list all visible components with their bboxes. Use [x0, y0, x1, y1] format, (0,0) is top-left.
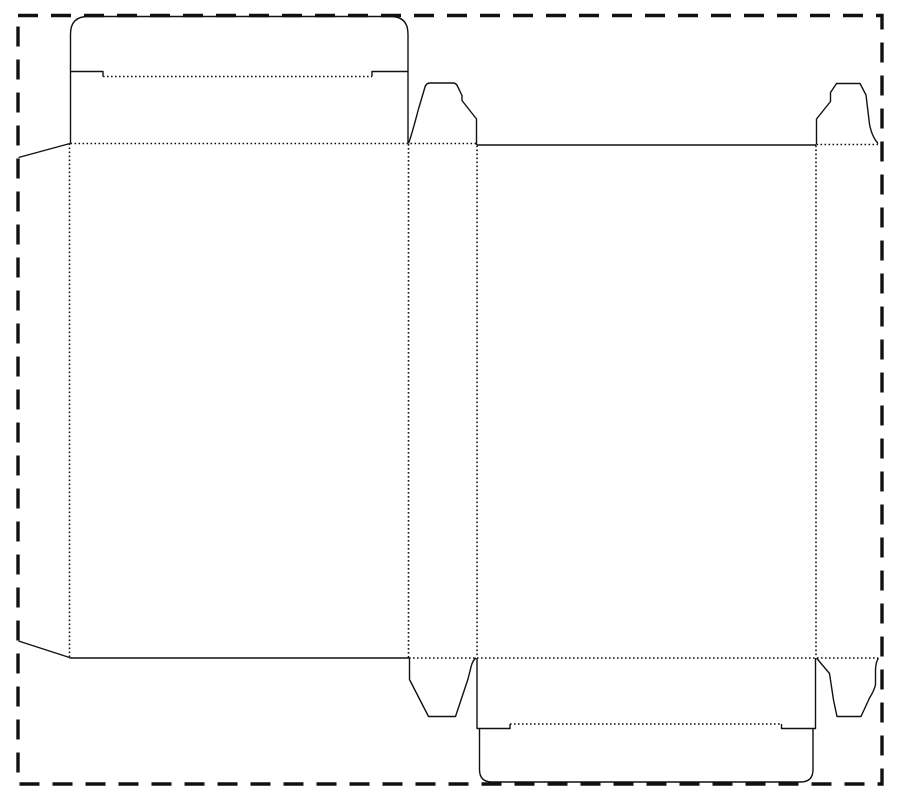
dieline-border-group [18, 16, 882, 785]
dieline-canvas [0, 0, 900, 800]
top-tuck-shoulder-left [71, 72, 104, 77]
page [0, 0, 900, 800]
bottom-tuck-lid-outline [480, 729, 814, 783]
bottom-dust-flap-right [817, 658, 879, 717]
glue-flap-bottom-edge [19, 641, 70, 658]
dieline-fold-lines-group [70, 77, 879, 725]
top-dust-flap-left [409, 83, 477, 145]
sheet-border [18, 16, 882, 785]
bottom-closure-right-cut [782, 658, 816, 729]
dieline-cut-lines-group [19, 17, 879, 783]
top-dust-flap-right [817, 84, 879, 145]
top-tuck-shoulder-right [372, 72, 408, 77]
bottom-dust-flap-left [410, 658, 477, 717]
top-tuck-lid-outline [71, 17, 409, 144]
glue-flap-top-edge [19, 144, 71, 158]
bottom-closure-left-cut [477, 658, 510, 729]
